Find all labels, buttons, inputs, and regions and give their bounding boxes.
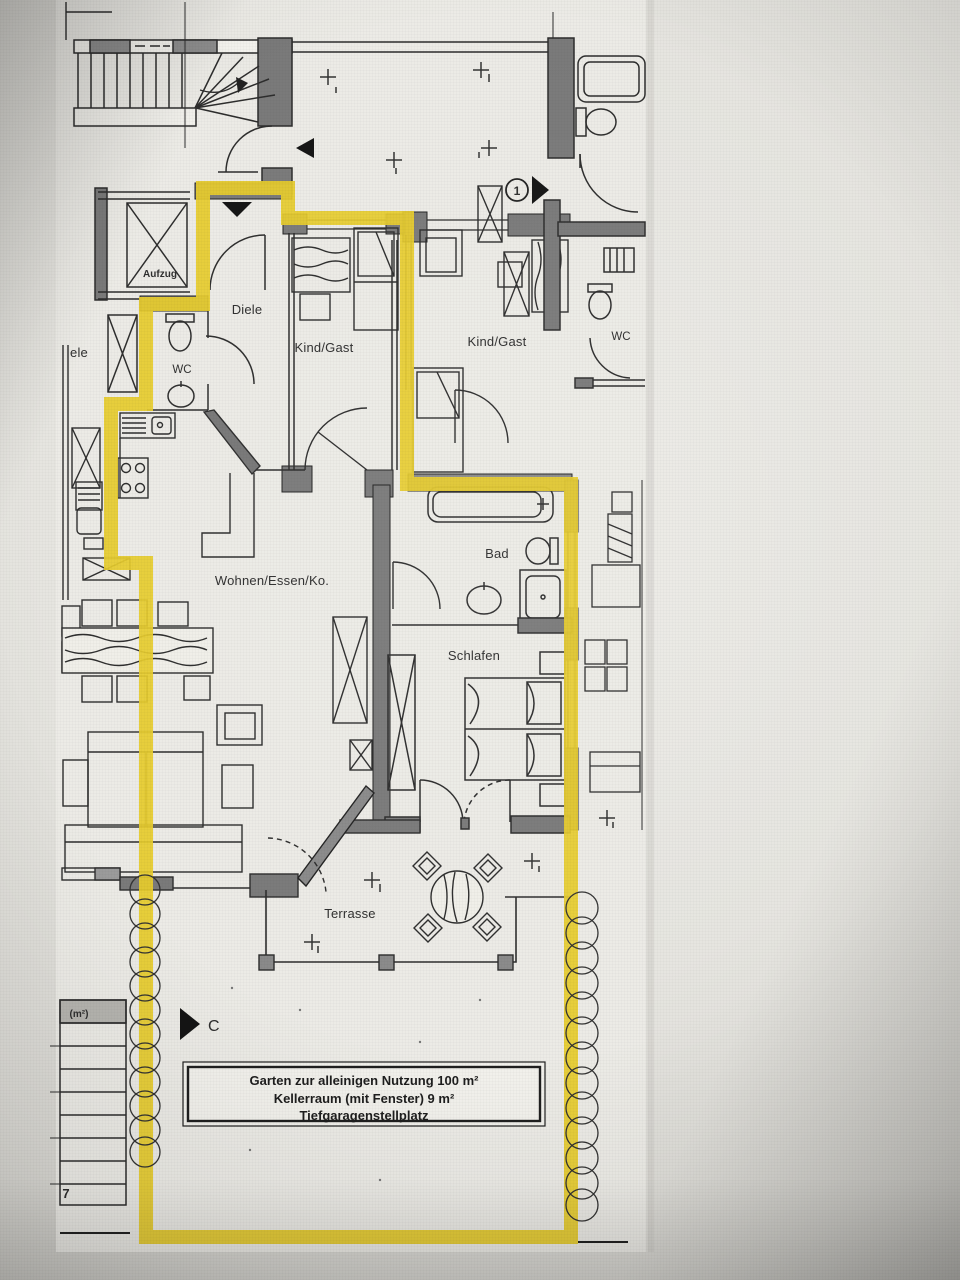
paper-edge-shadow [646, 0, 654, 1252]
room-label-wc-neighbor: WC [611, 331, 630, 343]
room-label-wc: WC [172, 364, 191, 376]
section-letter: C [208, 1018, 220, 1035]
room-label-wohnen: Wohnen/Essen/Ko. [215, 573, 329, 588]
annotation-line-3: Tiefgaragenstellplatz [299, 1108, 429, 1123]
room-label-kind-gast-right: Kind/Gast [468, 334, 527, 349]
room-label-diele: Diele [232, 302, 263, 317]
room-label-terrasse: Terrasse [324, 906, 375, 921]
room-label-schlafen: Schlafen [448, 648, 500, 663]
room-label-bad: Bad [485, 546, 509, 561]
terrace-table [431, 871, 483, 923]
annotation-line-1: Garten zur alleinigen Nutzung 100 m² [250, 1073, 480, 1088]
area-unit-label: (m²) [70, 1009, 89, 1020]
floor-plan-drawing: Aufzug [0, 0, 960, 1280]
annotation-line-2: Kellerraum (mit Fenster) 9 m² [274, 1091, 455, 1106]
annotation-box: Garten zur alleinigen Nutzung 100 m² Kel… [183, 1062, 545, 1126]
room-label-diele-neighbor: ele [70, 345, 88, 360]
entrance-number: 1 [514, 184, 521, 198]
room-label-aufzug: Aufzug [143, 269, 177, 280]
room-label-kind-gast-left: Kind/Gast [295, 340, 354, 355]
floor-plan-photo: Aufzug [0, 0, 960, 1280]
parking-row-number: 7 [62, 1186, 69, 1201]
